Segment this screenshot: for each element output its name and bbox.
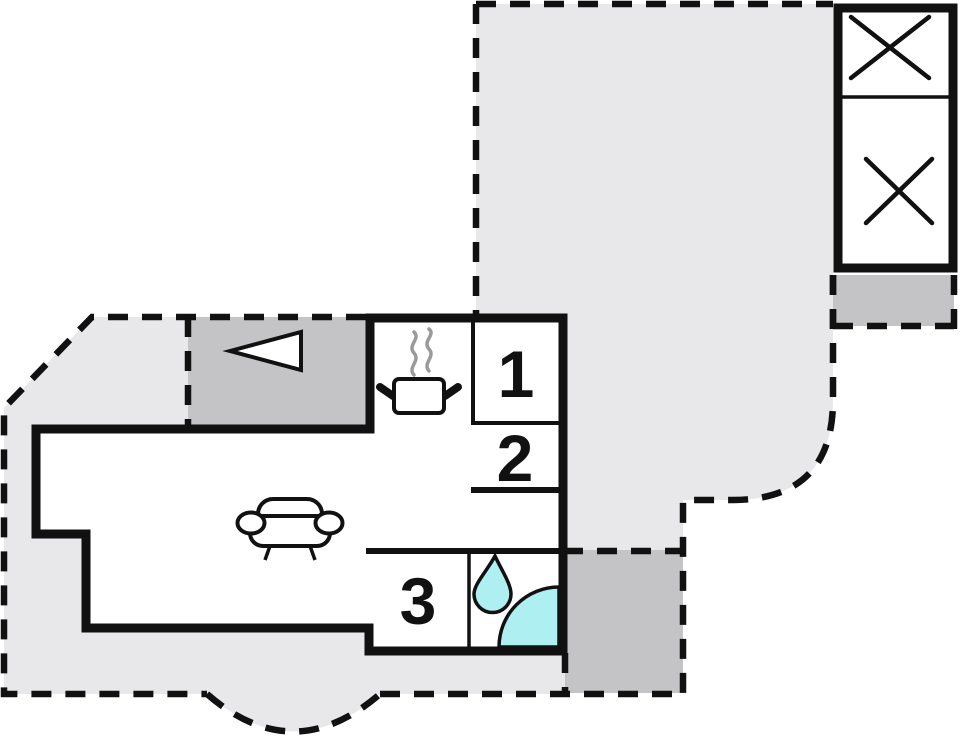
- pot-body: [394, 379, 444, 413]
- floor-plan-canvas: 1 2 3: [0, 0, 960, 736]
- room-1-label: 1: [498, 337, 535, 411]
- room-3-label: 3: [400, 564, 437, 638]
- room-2-label: 2: [497, 421, 534, 495]
- floor-plan: 1 2 3: [0, 0, 960, 736]
- crossed-square-frame: [838, 8, 953, 268]
- balcony-top-right: [833, 275, 954, 326]
- crossed-square-unit: [838, 8, 953, 268]
- tv-area: [188, 317, 368, 429]
- balcony-bottom: [565, 550, 683, 693]
